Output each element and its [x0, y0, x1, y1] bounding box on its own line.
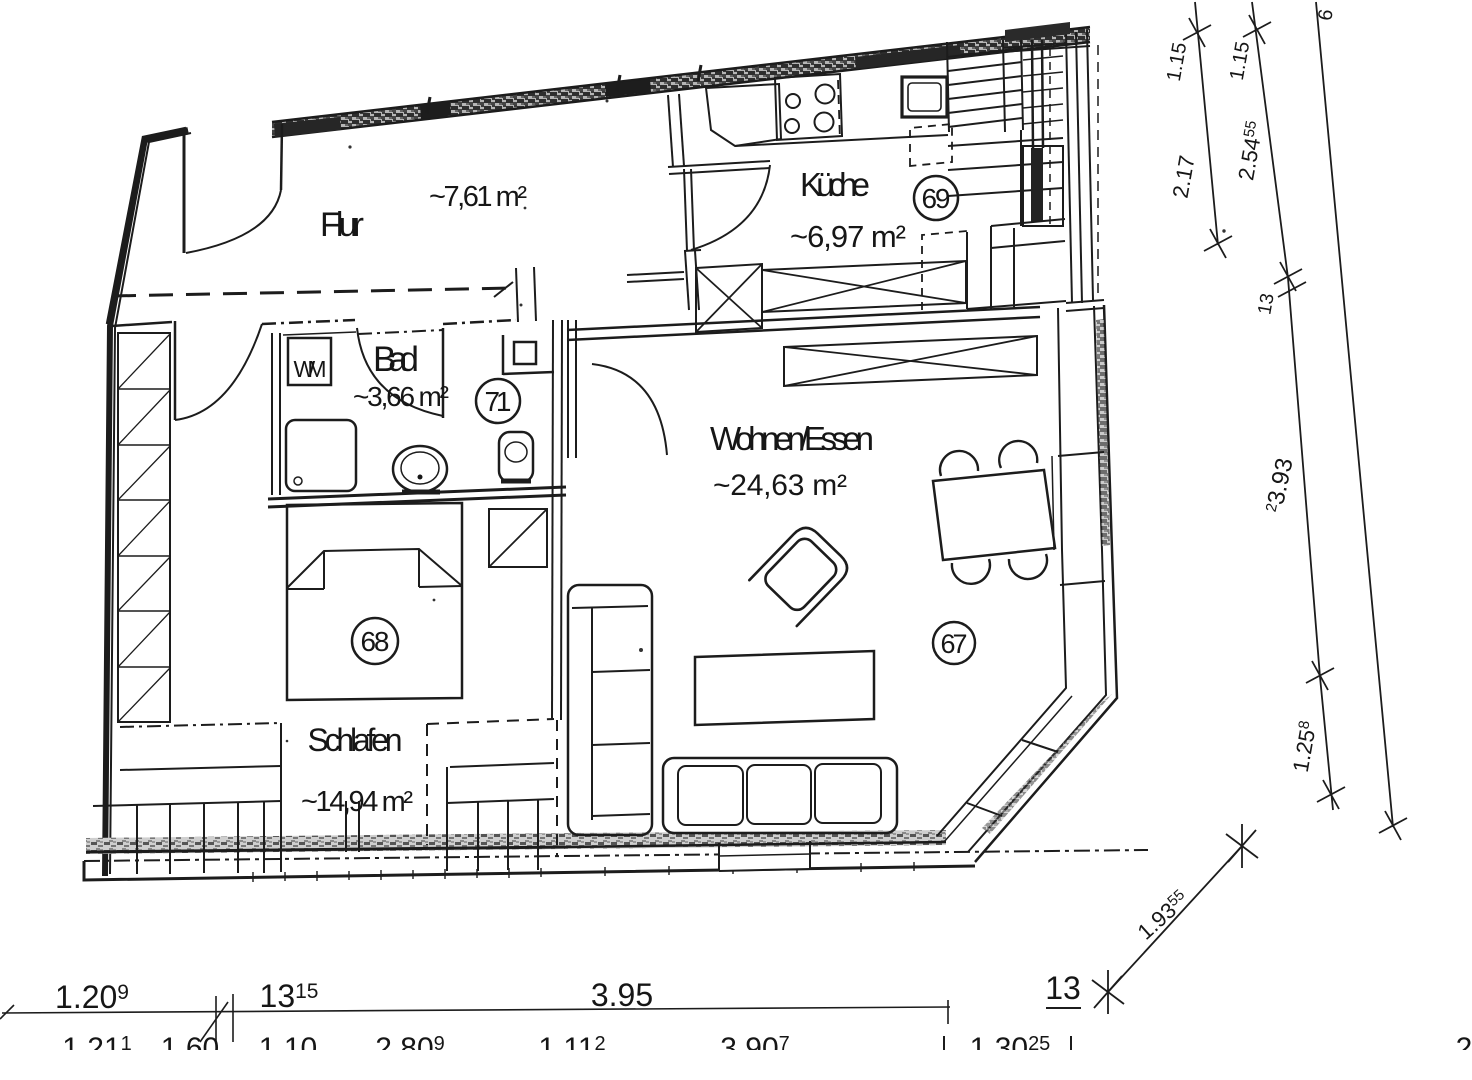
- svg-text:~6,97 m²: ~6,97 m²: [790, 219, 906, 254]
- svg-text:71: 71: [485, 386, 512, 417]
- svg-text:~3,66 m²: ~3,66 m²: [353, 381, 449, 412]
- svg-text:69: 69: [922, 183, 951, 214]
- svg-text:2.17: 2.17: [1168, 153, 1200, 200]
- svg-text:1.15: 1.15: [1226, 40, 1254, 82]
- svg-text:Schlafen: Schlafen: [308, 722, 403, 758]
- svg-text:1.9355: 1.9355: [1133, 886, 1194, 944]
- svg-text:68: 68: [361, 626, 390, 657]
- svg-text:Wohnen/Essen: Wohnen/Essen: [710, 420, 874, 457]
- svg-text:6: 6: [1314, 8, 1338, 23]
- svg-text:Bad: Bad: [373, 340, 419, 379]
- svg-text:2.5455: 2.5455: [1233, 119, 1268, 182]
- svg-text:23.93: 23.93: [1261, 456, 1299, 515]
- svg-text:Flur: Flur: [320, 206, 364, 244]
- svg-text:13: 13: [1045, 970, 1081, 1006]
- svg-text:Küche: Küche: [800, 166, 870, 203]
- svg-text:~7,61 m²: ~7,61 m²: [429, 181, 527, 213]
- svg-text:WM: WM: [294, 356, 327, 382]
- svg-text:1.15: 1.15: [1163, 41, 1191, 83]
- svg-text:13: 13: [1254, 292, 1278, 316]
- svg-text:67: 67: [941, 629, 968, 659]
- svg-text:1.258: 1.258: [1288, 719, 1322, 774]
- svg-text:1.209: 1.209: [55, 979, 129, 1015]
- svg-text:~24,63 m²: ~24,63 m²: [713, 469, 847, 502]
- svg-text:3.95: 3.95: [591, 977, 653, 1013]
- svg-text:~14,94 m²: ~14,94 m²: [301, 786, 413, 818]
- svg-text:1315: 1315: [260, 978, 319, 1014]
